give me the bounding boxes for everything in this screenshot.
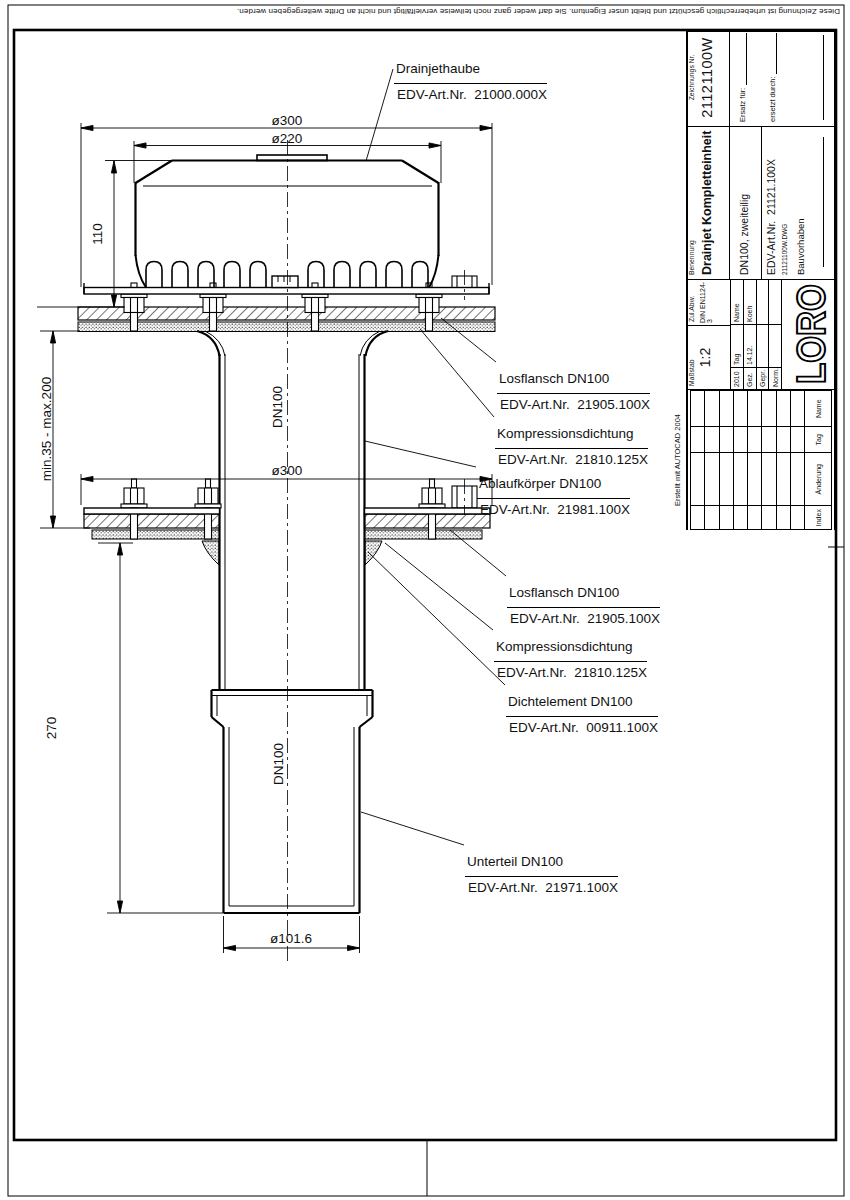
dim-dia300-mid: ø300 <box>272 463 303 478</box>
revision-col-index: Index <box>805 505 831 529</box>
benennung-label: Benennung <box>688 240 695 275</box>
part-label-dichtelement: Dichtelement DN100EDV-Art.Nr. 00911.100X <box>506 664 658 735</box>
title-block: Erstellt mit AUTOCAD 2004 Index Änderung <box>686 30 836 530</box>
dwg-file: 21121100W.DWG <box>781 224 788 275</box>
zeichnungs-nr-label: Zeichnungs Nr. <box>688 29 695 126</box>
dim-adjust-range: min.35 - max.200 <box>39 377 54 481</box>
revision-col-tag: Tag <box>805 426 831 452</box>
copyright-notice: Diese Zeichnung ist urheberrechtlich ges… <box>215 7 840 16</box>
variante-value: DN100, zweiteilig <box>738 194 750 275</box>
benennung-value: Drainjet Kompletteinheit <box>700 131 714 275</box>
pipe-label-dn100-lower: DN100 <box>271 743 286 785</box>
ersetzt-durch-row: ersetzt durch: <box>766 29 777 126</box>
dim-270: 270 <box>44 717 59 740</box>
sig-year: 2010 <box>731 367 743 389</box>
loro-logo: LORO <box>782 279 836 389</box>
revision-table: Index Änderung Tag Name <box>690 390 832 530</box>
bauvorhaben-label: Bauvorhaben <box>795 218 806 275</box>
revision-col-aenderung: Änderung <box>805 452 831 505</box>
part-label-drainjethaube: DrainjethaubeEDV-Art.Nr. 21000.000X <box>394 31 547 102</box>
ersetzt-durch-label: ersetzt durch: <box>768 74 777 126</box>
ersatz-fuer-label: Ersatz für: <box>738 85 747 126</box>
sig-name-header: Name <box>731 279 743 324</box>
drainjet-dome <box>136 155 439 288</box>
massstab-value: 1:2 <box>697 326 713 389</box>
sig-tag-header: Tag <box>731 324 743 367</box>
sig-norm-label: Norm. <box>769 367 781 389</box>
massstab-cell: Maßstab 1:2 <box>686 326 730 389</box>
svg-text:LORO: LORO <box>789 284 833 384</box>
signature-table: 2010 Tag Name Gez. 14.12. Koeh Gepr. <box>730 279 782 389</box>
part-label-unterteil: Unterteil DN100EDV-Art.Nr. 21971.100X <box>465 824 618 895</box>
dim-dia101: ø101.6 <box>270 931 312 946</box>
pipe-label-dn100-upper: DN100 <box>270 386 285 428</box>
edv-artnr: EDV-Art.Nr. 21121.100X <box>765 159 777 275</box>
dome-clamp-block <box>272 276 298 288</box>
drawing-number-section: Zeichnungs Nr. 21121100W Ersatz für: ers… <box>686 30 836 127</box>
lower-pipe <box>212 690 373 913</box>
drawing-sheet: Diese Zeichnung ist urheberrechtlich ges… <box>0 0 850 1200</box>
ersatz-fuer-row: Ersatz für: <box>736 29 747 126</box>
revision-col-name: Name <box>805 391 831 426</box>
dim-110: 110 <box>90 223 105 245</box>
lower-flange-plates <box>84 508 490 514</box>
dim-dia300-top: ø300 <box>272 113 303 128</box>
zul-abw-cell: Zul.Abw. DIN EN1124-3 <box>686 279 730 326</box>
sig-gepr-label: Gepr. <box>757 367 769 389</box>
benennung-section: Benennung Drainjet Kompletteinheit DN100… <box>686 127 836 280</box>
revision-section: Index Änderung Tag Name <box>686 390 836 530</box>
seal-element-left <box>202 541 219 565</box>
zul-abw-value: DIN EN1124-3 <box>695 279 713 325</box>
drain-body-pipe <box>197 331 388 690</box>
autocad-note: Erstellt mit AUTOCAD 2004 <box>673 390 682 530</box>
sig-gez-name: Koeh <box>744 279 756 324</box>
scale-signature-section: Maßstab 1:2 Zul.Abw. DIN EN1124-3 2010 T… <box>686 280 836 390</box>
seal-element-right <box>365 541 382 565</box>
dim-dia220: ø220 <box>272 131 303 146</box>
part-label-ablaufkoerper: Ablaufkörper DN100EDV-Art.Nr. 21981.100X <box>477 446 630 517</box>
revision-header-row: Index Änderung Tag Name <box>805 391 831 529</box>
sig-gez-tag: 14.12. <box>744 324 756 367</box>
zeichnungs-nr-value: 21121100W <box>699 29 715 126</box>
sig-gez-label: Gez. <box>744 367 756 389</box>
